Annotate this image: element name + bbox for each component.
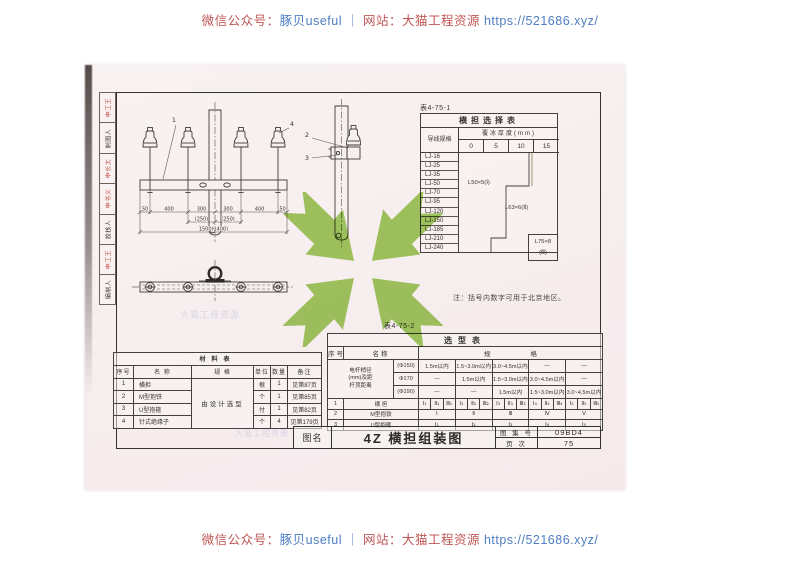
spec-range-cell: — bbox=[529, 360, 566, 373]
ghost-watermark-text-2: 大猫工程资源 bbox=[235, 428, 289, 439]
site-url-link[interactable]: https://521686.xyz/ bbox=[484, 14, 598, 28]
item-spec-cell: Ⅱ₂ bbox=[468, 399, 480, 410]
dim-400-right: 400 bbox=[255, 207, 265, 213]
banner-separator: ｜ bbox=[342, 14, 363, 28]
item-number: 1 bbox=[328, 399, 344, 410]
conductor-spec-header: 导线规格 bbox=[421, 128, 459, 153]
zone2-label: L63×6(Ⅱ) bbox=[505, 205, 528, 211]
item-spec-cell: Ⅲ₂ bbox=[480, 399, 492, 410]
conductor-cell: LJ-35 bbox=[421, 171, 459, 180]
pole-diameter-value: (Φ150) bbox=[394, 360, 419, 373]
dim-total: 1500(1400) bbox=[199, 227, 228, 233]
selection-table-title: 横担选择表 bbox=[421, 114, 557, 128]
col-spec-header: 规格 bbox=[419, 347, 603, 360]
crossarm-top-view bbox=[140, 282, 287, 292]
zone-area: L50×5(Ⅰ) L63×6(Ⅱ) L75×8 (Ⅲ) bbox=[459, 153, 559, 253]
spec-range-cell: 1.5~3.0m以内 bbox=[492, 373, 529, 386]
zone1-label: L50×5(Ⅰ) bbox=[468, 180, 490, 186]
material-remark: 见第82页 bbox=[288, 403, 322, 416]
part-label-3: 3 bbox=[305, 154, 309, 162]
conductor-cell: LJ-16 bbox=[421, 153, 459, 162]
material-unit: 根 bbox=[254, 378, 271, 391]
material-qty: 4 bbox=[271, 416, 288, 429]
material-number: 4 bbox=[114, 416, 134, 429]
material-spec-merged: 由设计选型 bbox=[192, 378, 254, 428]
site-label: 网站： bbox=[363, 14, 402, 28]
atlas-number-label: 图 集 号 bbox=[496, 427, 538, 437]
bottom-watermark-banner: 微信公众号：豚贝useful ｜ 网站：大猫工程资源 https://52168… bbox=[0, 529, 800, 548]
spec-range-cell: — bbox=[419, 373, 456, 386]
item-spec-cell: Ⅱ₄ bbox=[541, 399, 553, 410]
item-spec-cell: Ⅲ bbox=[492, 409, 529, 420]
material-name: M型抱铁 bbox=[134, 391, 192, 404]
ice-thickness-cell: 5 bbox=[484, 140, 509, 153]
col-seq-header: 序号 bbox=[328, 347, 344, 360]
item-spec-cell: Ⅱ₅ bbox=[578, 399, 590, 410]
material-remark: 见第85页 bbox=[288, 391, 322, 404]
material-number: 1 bbox=[114, 378, 134, 391]
item-row: 2M型抱铁ⅠⅡⅢⅣⅤ bbox=[328, 409, 603, 420]
banner-separator-bottom: ｜ bbox=[342, 533, 363, 547]
title-block: 图名 4Z 横担组装图 图 集 号 09BD4 页 次 75 bbox=[293, 426, 601, 449]
scan-shadow-edge bbox=[85, 65, 92, 395]
site-label-bottom: 网站： bbox=[363, 533, 402, 547]
drawing-name-label: 图名 bbox=[294, 427, 332, 448]
material-table: 材料表 序号 名 称 规 格 单位 数量 备注 1横担由设计选型根1见第87页2… bbox=[113, 352, 322, 429]
dim-300-right: 300 bbox=[223, 207, 233, 213]
item-spec-cell: Ⅱ₃ bbox=[504, 399, 516, 410]
ice-thickness-cell: 10 bbox=[509, 140, 534, 153]
green-x-logo-watermark bbox=[283, 192, 443, 347]
crossarm-front bbox=[140, 180, 287, 190]
ice-thickness-cell: 0 bbox=[459, 140, 484, 153]
wechat-label: 微信公众号： bbox=[202, 14, 280, 28]
wechat-name: 豚贝useful bbox=[280, 14, 342, 28]
wechat-name-bottom: 豚贝useful bbox=[280, 533, 342, 547]
material-unit: 个 bbox=[254, 391, 271, 404]
zone3-box: L75×8 (Ⅲ) bbox=[528, 234, 558, 261]
material-table-title: 材料表 bbox=[114, 353, 322, 366]
item-spec-cell: Ⅰ₄ bbox=[529, 399, 541, 410]
pole-diameter-value: (Φ190) bbox=[394, 386, 419, 399]
mat-header-remark: 备注 bbox=[288, 365, 322, 378]
mat-header-qty: 数量 bbox=[271, 365, 288, 378]
spec-range-cell: 1.5~3.0m以内 bbox=[455, 360, 492, 373]
dim-250-right: (250) bbox=[221, 217, 234, 223]
ice-thickness-header: 覆冰厚度(mm) bbox=[459, 128, 559, 140]
item-spec-cell: Ⅰ₅ bbox=[566, 399, 578, 410]
item-spec-cell: Ⅲ₅ bbox=[590, 399, 603, 410]
item-spec-cell: Ⅲ₄ bbox=[553, 399, 565, 410]
page-number-label: 页 次 bbox=[496, 438, 538, 448]
item-spec-cell: Ⅰ bbox=[419, 409, 456, 420]
selection-table-caption: 表4-75-1 bbox=[420, 103, 451, 113]
item-number: 2 bbox=[328, 409, 344, 420]
spec-range-cell: 1.5m以内 bbox=[455, 373, 492, 386]
dim-400-left: 400 bbox=[164, 207, 174, 213]
conductor-cell: LJ-50 bbox=[421, 180, 459, 189]
pole-diameter-label: 电杆梢径 (mm)及距 杆顶距离 bbox=[328, 360, 394, 399]
dim-300-left: 300 bbox=[197, 207, 207, 213]
table-note: 注：括号内数字可用于北京地区。 bbox=[453, 293, 566, 303]
spec-range-cell: 1.5m以内 bbox=[492, 386, 529, 399]
dim-50-left: 50 bbox=[142, 207, 148, 213]
material-number: 3 bbox=[114, 403, 134, 416]
material-qty: 1 bbox=[271, 403, 288, 416]
item-spec-cell: Ⅴ bbox=[566, 409, 603, 420]
mat-header-unit: 单位 bbox=[254, 365, 271, 378]
material-qty: 1 bbox=[271, 391, 288, 404]
top-watermark-banner: 微信公众号：豚贝useful ｜ 网站：大猫工程资源 https://52168… bbox=[0, 10, 800, 29]
item-name: 横 担 bbox=[344, 399, 419, 410]
ice-thickness-values: 051015 bbox=[459, 140, 559, 153]
material-qty: 1 bbox=[271, 378, 288, 391]
material-remark: 见第87页 bbox=[288, 378, 322, 391]
material-name: U型抱箍 bbox=[134, 403, 192, 416]
pole-diameter-value: Φ170 bbox=[394, 373, 419, 386]
pole-diameter-row: 电杆梢径 (mm)及距 杆顶距离(Φ150)1.5m以内1.5~3.0m以内3.… bbox=[328, 360, 603, 373]
scanned-drawing-sheet: 申工王制图人申长太申书义校核人申工王编制人 1 4 bbox=[85, 65, 625, 490]
spec-range-cell: 3.0~4.5m以内 bbox=[529, 373, 566, 386]
col-name-header: 名称 bbox=[344, 347, 419, 360]
atlas-number-value: 09BD4 bbox=[538, 427, 600, 437]
material-row: 1横担由设计选型根1见第87页 bbox=[114, 378, 322, 391]
spec-range-cell: — bbox=[419, 386, 456, 399]
item-row: 1横 担Ⅰ₁Ⅱ₁Ⅲ₁Ⅰ₂Ⅱ₂Ⅲ₂Ⅰ₃Ⅱ₃Ⅲ₃Ⅰ₄Ⅱ₄Ⅲ₄Ⅰ₅Ⅱ₅Ⅲ₅ bbox=[328, 399, 603, 410]
item-spec-cell: Ⅰ₁ bbox=[419, 399, 431, 410]
item-spec-cell: Ⅰ₂ bbox=[455, 399, 467, 410]
spec-range-cell: 1.5~3.0m以内 bbox=[529, 386, 566, 399]
item-spec-cell: Ⅰ₃ bbox=[492, 399, 504, 410]
material-name: 针式绝缘子 bbox=[134, 416, 192, 429]
crossarm-end-view bbox=[347, 147, 360, 159]
wechat-label-bottom: 微信公众号： bbox=[202, 533, 280, 547]
spec-range-cell: — bbox=[566, 373, 603, 386]
material-number: 2 bbox=[114, 391, 134, 404]
ice-thickness-cell: 15 bbox=[534, 140, 559, 153]
page-number-value: 75 bbox=[538, 438, 600, 448]
item-spec-cell: Ⅲ₁ bbox=[443, 399, 455, 410]
zone3-numeral: (Ⅲ) bbox=[529, 248, 557, 259]
spec-range-cell: 3.0~4.5m以内 bbox=[492, 360, 529, 373]
item-spec-cell: Ⅱ bbox=[455, 409, 492, 420]
spec-range-cell: 3.0~4.5m以内 bbox=[566, 386, 603, 399]
item-spec-cell: Ⅳ bbox=[529, 409, 566, 420]
insulator-side bbox=[347, 126, 361, 146]
type-selection-table: 选型表 序号 名称 规格 电杆梢径 (mm)及距 杆顶距离(Φ150)1.5m以… bbox=[327, 333, 603, 431]
mat-header-no: 序号 bbox=[114, 365, 134, 378]
item-name: M型抱铁 bbox=[344, 409, 419, 420]
mat-header-spec: 规 格 bbox=[192, 365, 254, 378]
item-spec-cell: Ⅲ₃ bbox=[517, 399, 529, 410]
spec-range-cell: 1.5m以内 bbox=[419, 360, 456, 373]
material-name: 横担 bbox=[134, 378, 192, 391]
site-url-link-bottom[interactable]: https://521686.xyz/ bbox=[484, 533, 598, 547]
part-label-4: 4 bbox=[290, 120, 294, 128]
conductor-cell: LJ-25 bbox=[421, 162, 459, 171]
part-label-1: 1 bbox=[172, 116, 176, 124]
site-name: 大猫工程资源 bbox=[402, 14, 484, 28]
zone3-label: L75×8 bbox=[529, 237, 557, 248]
spec-range-cell: — bbox=[566, 360, 603, 373]
spec-range-cell: — bbox=[455, 386, 492, 399]
site-name-bottom: 大猫工程资源 bbox=[402, 533, 484, 547]
mat-header-name: 名 称 bbox=[134, 365, 192, 378]
dim-250-left: (250) bbox=[195, 217, 208, 223]
drawing-name: 4Z 横担组装图 bbox=[332, 427, 496, 448]
part-label-2: 2 bbox=[305, 131, 309, 139]
material-unit: 个 bbox=[254, 416, 271, 429]
ghost-watermark-text: 大猫工程资源 bbox=[180, 308, 240, 321]
item-spec-cell: Ⅱ₁ bbox=[431, 399, 443, 410]
material-unit: 付 bbox=[254, 403, 271, 416]
